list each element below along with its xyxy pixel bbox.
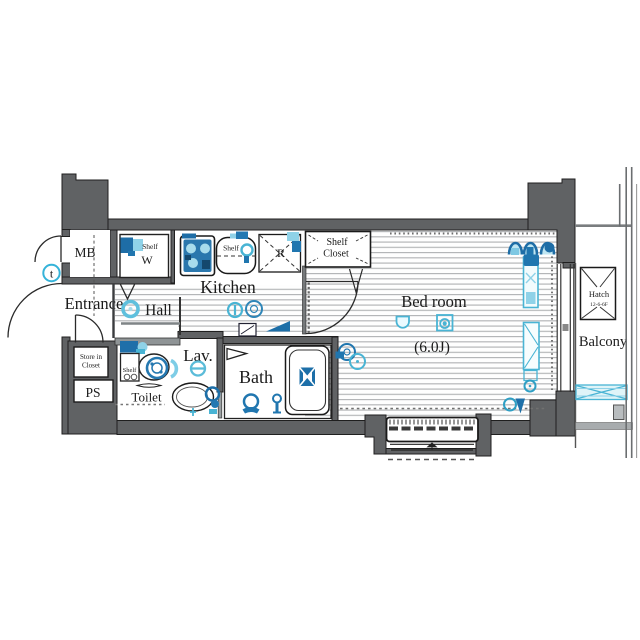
svg-text:Bed room: Bed room [401,292,467,311]
svg-text:R: R [277,246,285,260]
svg-text:Closet: Closet [323,249,349,260]
svg-text:Store in: Store in [80,353,102,361]
svg-text:Toilet: Toilet [131,390,162,405]
svg-text:Kitchen: Kitchen [200,277,256,297]
svg-text:Balcony: Balcony [579,334,628,350]
svg-text:Hatch: Hatch [589,289,610,299]
svg-text:(6.0J): (6.0J) [414,339,450,356]
svg-text:Shelf: Shelf [142,242,158,251]
svg-text:Shelf: Shelf [326,237,348,248]
svg-text:Bath: Bath [239,367,273,387]
svg-text:W: W [141,253,153,267]
svg-text:12-6-6F: 12-6-6F [590,302,608,308]
svg-text:Shelf: Shelf [223,244,239,253]
svg-text:Hall: Hall [145,302,172,319]
svg-text:Shelf: Shelf [123,367,138,374]
svg-text:PS: PS [85,385,100,400]
svg-text:MB: MB [74,245,95,260]
svg-text:Closet: Closet [82,362,100,370]
